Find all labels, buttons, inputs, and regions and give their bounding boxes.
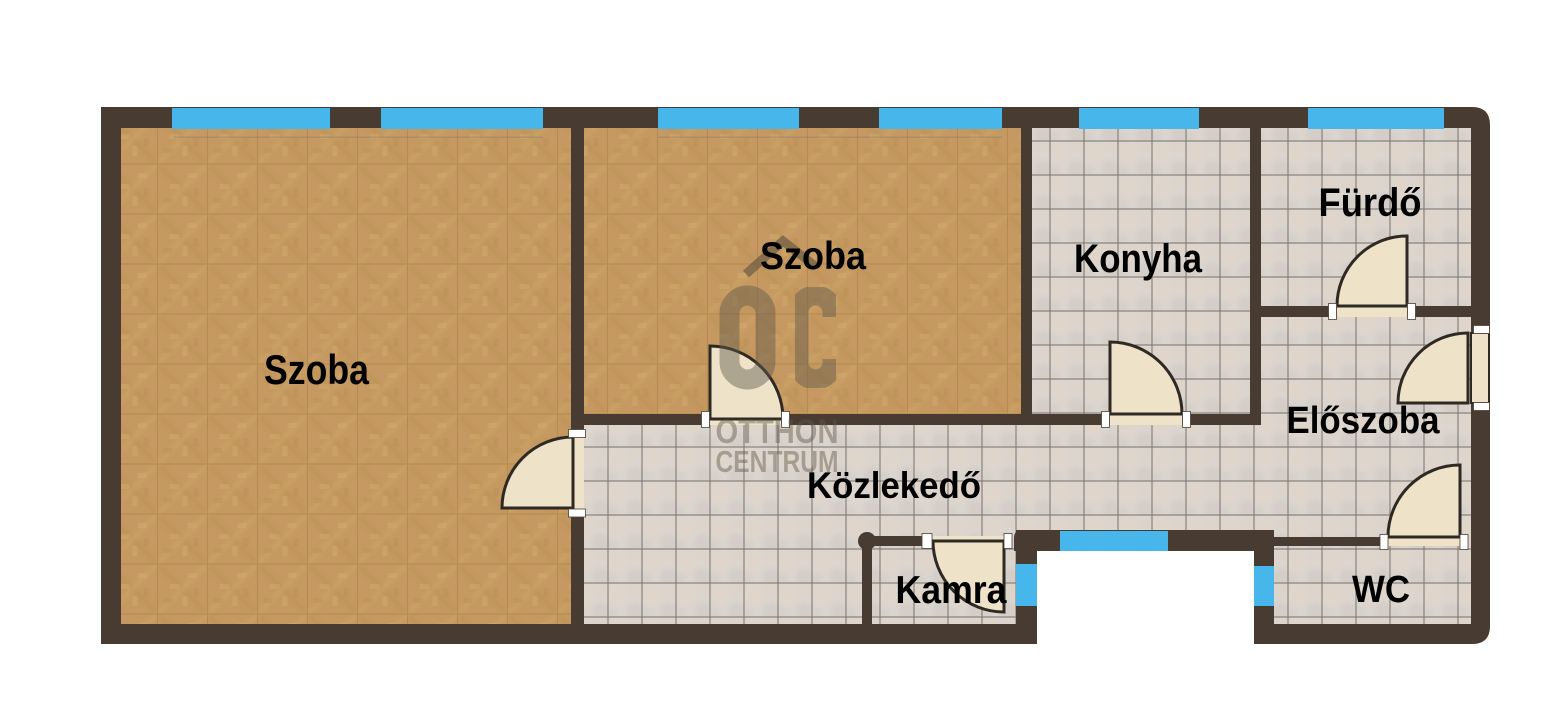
svg-text:WC: WC xyxy=(1352,569,1410,611)
svg-text:Szoba: Szoba xyxy=(760,235,866,278)
svg-text:Közlekedő: Közlekedő xyxy=(807,465,981,506)
svg-text:Szoba: Szoba xyxy=(264,346,370,393)
svg-text:Fürdő: Fürdő xyxy=(1319,181,1422,225)
svg-text:Kamra: Kamra xyxy=(896,569,1007,612)
svg-text:Konyha: Konyha xyxy=(1074,237,1203,281)
svg-text:Előszoba: Előszoba xyxy=(1287,400,1441,442)
